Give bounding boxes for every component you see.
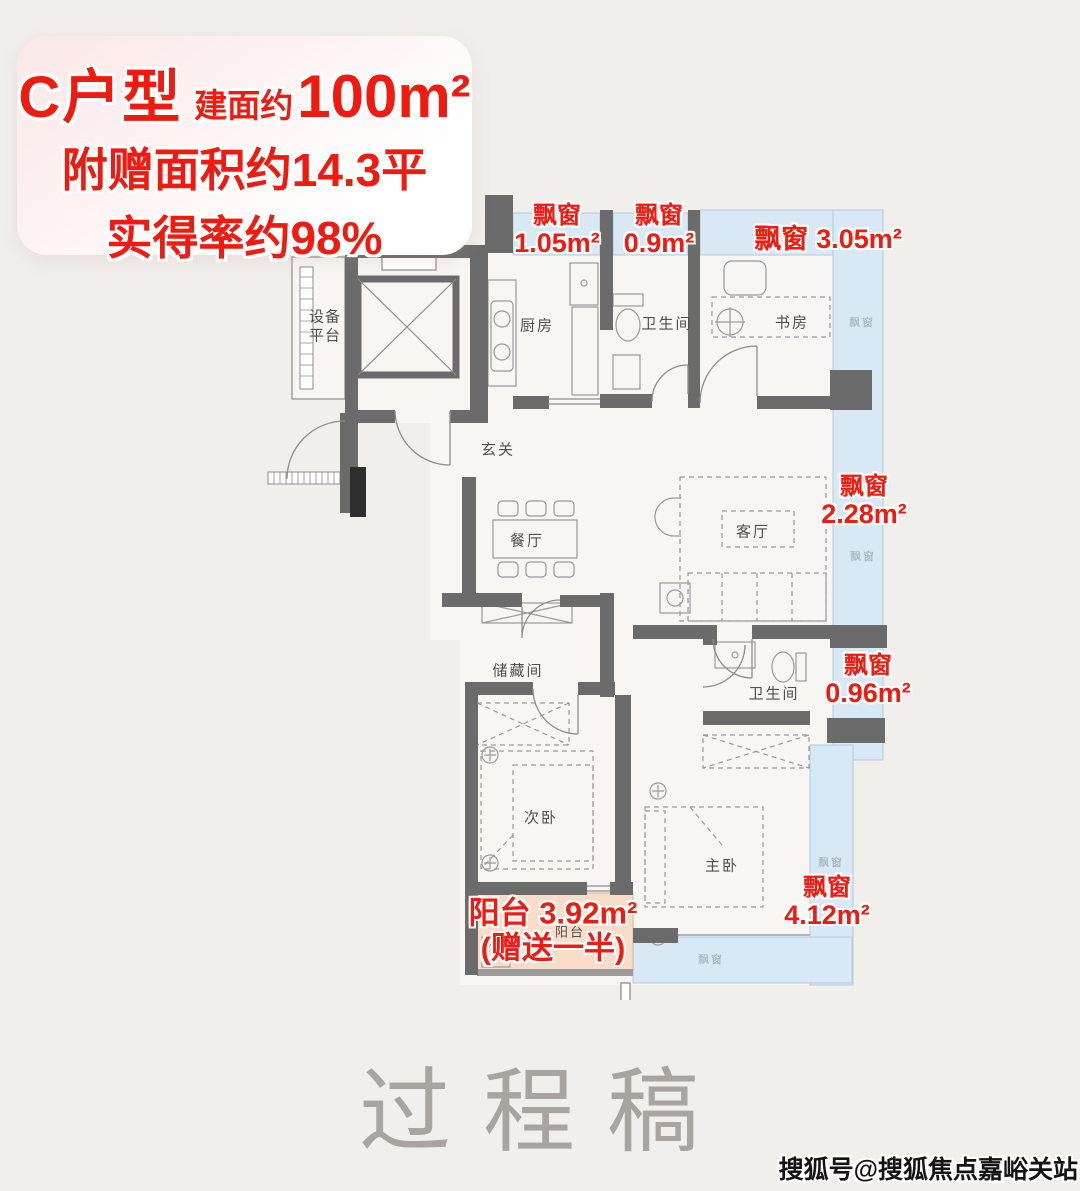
room-label-foyer: 玄关 [481, 439, 515, 460]
area-value: 100m² [297, 62, 470, 131]
unit-type-label: C户型 [18, 50, 182, 134]
bay-window-annotation-4: 飘窗2.28m² [821, 474, 907, 530]
room-label-living: 客厅 [736, 521, 770, 542]
bay-window-small-label: 飘窗 [818, 854, 844, 870]
area-prefix-label: 建面约 [194, 79, 293, 127]
bay-window-annotation-2: 飘窗0.9m² [624, 203, 695, 259]
room-label-study: 书房 [775, 312, 809, 333]
room-label-master-bedroom: 主卧 [705, 855, 739, 876]
room-label-dining: 餐厅 [510, 530, 544, 551]
bay-window-small-label: 飘窗 [698, 951, 724, 967]
room-label-second-bedroom: 次卧 [524, 807, 558, 828]
room-label-equipment-platform: 设备平台 [309, 308, 341, 346]
bay-window-annotation-5: 飘窗0.96m² [825, 653, 911, 709]
card-headline: C户型 建面约 100m² [17, 50, 472, 134]
room-label-bathroom-top: 卫生间 [641, 313, 692, 334]
structural-column [350, 467, 366, 517]
bay-window-small-label: 飘窗 [849, 314, 875, 330]
bonus-area-line: 附赠面积约14.3平 [17, 134, 472, 200]
publisher-credit: 搜狐号@搜狐焦点嘉峪关站 [779, 1150, 1078, 1186]
floorplan-page: { "title_card": { "unit": "C户型", "area_l… [0, 0, 1080, 1191]
bay-window-annotation-3: 飘窗3.05m² [754, 225, 902, 255]
draft-watermark: 过程稿 [359, 1038, 731, 1171]
bay-window-annotation-6: 飘窗4.12m² [784, 875, 870, 931]
balcony-rail [477, 969, 633, 976]
bay-window-small-label: 飘窗 [850, 548, 876, 564]
room-label-kitchen: 厨房 [520, 315, 554, 336]
efficiency-line: 实得率约98% [17, 202, 472, 268]
balcony-annotation: 阳台 3.92m² (赠送一半) [469, 896, 638, 965]
unit-info-card: C户型 建面约 100m² 附赠面积约14.3平 实得率约98% [17, 36, 472, 255]
bay-window-annotation-1: 飘窗1.05m² [514, 203, 600, 259]
room-label-bathroom-bottom: 卫生间 [748, 683, 799, 704]
room-label-storage: 储藏间 [492, 660, 543, 681]
